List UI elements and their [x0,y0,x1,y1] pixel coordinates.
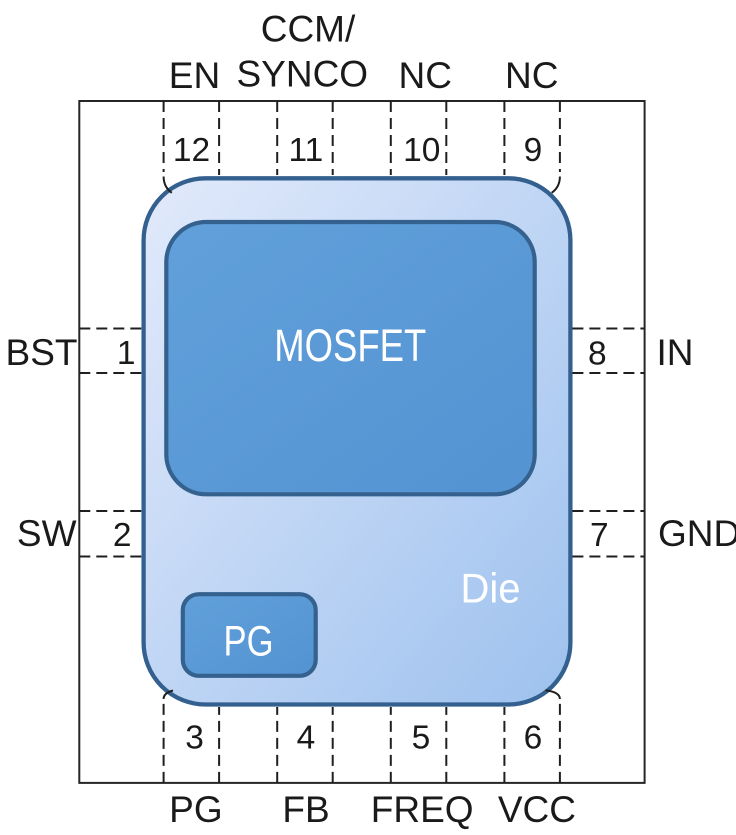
svg-text:4: 4 [297,719,316,756]
svg-text:SYNCO: SYNCO [237,54,369,95]
svg-text:Die: Die [461,565,521,612]
svg-text:FREQ: FREQ [371,789,474,830]
svg-text:SW: SW [17,513,77,554]
svg-text:2: 2 [113,517,132,554]
svg-text:FB: FB [282,789,329,830]
svg-text:BST: BST [6,332,78,373]
svg-text:1: 1 [117,335,136,372]
svg-text:PG: PG [224,618,274,666]
svg-text:NC: NC [505,55,558,96]
svg-text:PG: PG [169,789,222,830]
svg-text:EN: EN [169,55,220,96]
svg-text:12: 12 [173,132,210,169]
svg-text:9: 9 [524,132,543,169]
svg-text:CCM/: CCM/ [261,9,356,50]
svg-text:11: 11 [289,132,324,169]
svg-text:8: 8 [588,336,607,373]
svg-text:7: 7 [590,517,609,554]
svg-text:10: 10 [403,132,440,169]
svg-text:5: 5 [412,719,431,756]
svg-text:NC: NC [398,55,451,96]
svg-text:IN: IN [657,332,694,373]
svg-text:3: 3 [185,719,204,756]
svg-text:GND: GND [658,513,736,554]
svg-text:6: 6 [524,719,543,756]
svg-text:VCC: VCC [498,789,576,830]
svg-text:MOSFET: MOSFET [274,320,426,371]
